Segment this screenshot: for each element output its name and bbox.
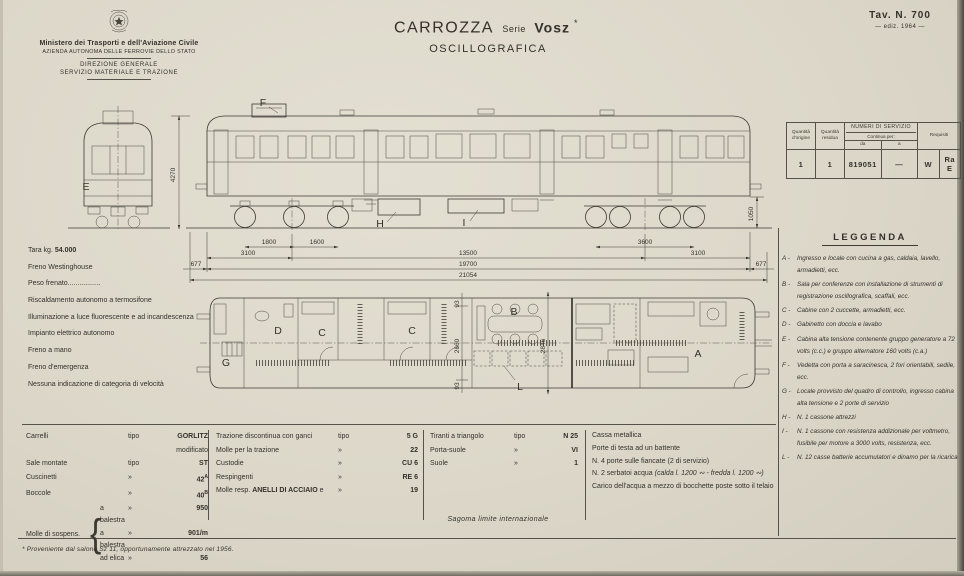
front-view-drawing: E	[68, 106, 170, 231]
legend-text: Vedetta con porta a saracinesca, 2 fori …	[797, 360, 958, 384]
row-value-sup: B	[204, 490, 208, 496]
dim-label: 3100	[691, 250, 706, 257]
row-label-post: e	[318, 487, 324, 494]
row-tipo: tipo	[128, 457, 152, 471]
dim-label: 13500	[459, 250, 477, 257]
legend-key: E -	[782, 334, 797, 358]
cassa-line-serbatoi: N. 2 serbatoi acqua (calda l. 1200 ∾ - f…	[592, 468, 774, 480]
legend-text: N. 12 casse batterie accumulatori e dina…	[797, 452, 958, 464]
legend-item-a: A -Ingresso e locale con cucina a gas, c…	[782, 253, 958, 277]
dim-label: 21054	[459, 272, 477, 279]
row-label: ad elica	[100, 553, 128, 566]
dim-label: 2846	[540, 338, 547, 353]
dim-floor-1050: 1050	[748, 197, 764, 228]
title-serie: Serie	[502, 24, 526, 34]
row-label: a balestra	[100, 503, 128, 528]
row-value: 950	[152, 503, 208, 528]
servizio-materiale: SERVIZIO MATERIALE E TRAZIONE	[16, 70, 222, 76]
cell-number-a: —	[881, 150, 918, 179]
row-label: Trazione discontinua con ganci	[216, 430, 338, 444]
legend-title: LEGGENDA	[822, 232, 918, 246]
table-trazione: Trazione discontinua con gancitipo5 G Mo…	[216, 430, 418, 522]
legend-key: D -	[782, 319, 797, 331]
agency-name: AZIENDA AUTONOMA DELLE FERROVIE DELLO ST…	[16, 49, 222, 55]
cell-number-da: 819051	[845, 150, 882, 179]
table-cassa: Cassa metallica Porte di testa ad un bat…	[592, 430, 774, 522]
direzione-generale: DIREZIONE GENERALE	[16, 62, 222, 68]
legend-text: N. 1 cassone attrezzi	[797, 412, 958, 424]
subtitle-oscillografica: OSCILLOGRAFICA	[348, 43, 628, 55]
plate-number: Tav. N. 700	[845, 10, 955, 21]
divider	[208, 430, 209, 520]
cell-req-w: W	[918, 150, 940, 179]
legend-text: Sala per conferenze con installazione di…	[797, 279, 958, 303]
sagoma-note: Sagoma limite internazionale	[398, 516, 598, 523]
row-tipo: tipo	[514, 430, 538, 444]
row-tipo: »	[128, 503, 152, 528]
row-value: RE 6	[362, 471, 418, 485]
legend-letter-l: L	[517, 381, 523, 393]
row-label: Suole	[430, 457, 514, 471]
molle-label: Molle di sospens.	[26, 531, 90, 538]
row-label: Cuscinetti	[26, 471, 128, 487]
dim-label: 3600	[638, 239, 653, 246]
row-value: 19	[362, 484, 418, 498]
legend-key: F -	[782, 360, 797, 384]
row-tipo: »	[338, 457, 362, 471]
legend-letter-h: H	[376, 218, 384, 230]
table-row: ad elica»56	[100, 553, 208, 566]
row-label: Molle resp.	[216, 487, 252, 494]
row-value: VI	[538, 444, 578, 458]
legend-letter-b: B	[510, 306, 517, 318]
dimension-chains: 1800 1600 3600 3100 13500 3100 677 19700…	[183, 232, 774, 283]
legend-text: Locale provvisto del quadro di controllo…	[797, 386, 958, 410]
row-tipo: »	[338, 444, 362, 458]
footnote: * Proveniente dal salone Sz 11, opportun…	[22, 546, 234, 553]
legend-key: I -	[782, 426, 797, 450]
scan-edge-left	[0, 0, 3, 576]
title-model-asterisk: *	[574, 18, 578, 28]
row-tipo: »	[514, 457, 538, 471]
row-label: Respingenti	[216, 471, 338, 485]
legend-text: Cabina alta tensione contenente gruppo g…	[797, 334, 958, 358]
table-row: Porta-suole»VI	[430, 444, 578, 458]
cassa-line: Cassa metallica	[592, 430, 774, 442]
legend-text: Ingresso e locale con cucina a gas, cald…	[797, 253, 958, 277]
legend-item-d: D -Gabinetto con doccia e lavabo	[782, 319, 958, 331]
service-numbers-table: Quantità d'origine Quantità residua NUME…	[786, 122, 961, 179]
table-row: Suole»1	[430, 457, 578, 471]
legend-letter-f: F	[260, 97, 266, 109]
table-row: Trazione discontinua con gancitipo5 G	[216, 430, 418, 444]
title-block: CARROZZA Serie Vosz* OSCILLOGRAFICA	[348, 18, 628, 55]
row-tipo: »	[338, 484, 362, 498]
legend-item-b: B -Sala per conferenze con installazione…	[782, 279, 958, 303]
legend-key: C -	[782, 305, 797, 317]
cassa-line: Porte di testa ad un battente	[592, 443, 774, 455]
row-label: Porta-suole	[430, 444, 514, 458]
legend-key: A -	[782, 253, 797, 277]
side-elevation-drawing: F H I	[186, 97, 772, 231]
table-row: Molle per la trazione»22	[216, 444, 418, 458]
col-requisiti: Requisiti	[918, 123, 961, 150]
continua-per-label: Continua per:	[846, 134, 916, 140]
row-tipo: tipo	[338, 430, 362, 444]
legend-key: L -	[782, 452, 797, 464]
table-row: Cuscinetti»42A	[26, 471, 208, 487]
legend-panel: LEGGENDA A -Ingresso e locale con cucina…	[782, 232, 958, 467]
table-tiranti: Tiranti a triangolotipoN 25 Porta-suole»…	[430, 430, 578, 522]
numeri-di-servizio-label: NUMERI DI SERVIZIO	[846, 124, 916, 133]
divider	[423, 430, 424, 520]
table-row: Respingenti»RE 6	[216, 471, 418, 485]
cell-req-ra: Ra E	[939, 150, 961, 179]
legend-item-g: G -Locale provvisto del quadro di contro…	[782, 386, 958, 410]
row-value: 56	[152, 553, 208, 566]
dim-label: 2660	[454, 338, 461, 353]
edition: — ediz. 1964 —	[845, 24, 955, 30]
dim-label: 93	[454, 300, 461, 308]
ministry-name: Ministero dei Trasporti e dell'Aviazione…	[16, 40, 222, 47]
dim-label: 4270	[170, 167, 177, 182]
table-row: Sale montatetipoST	[26, 457, 208, 471]
col-a: a	[881, 141, 918, 150]
plate-number-block: Tav. N. 700 — ediz. 1964 —	[845, 10, 955, 30]
title-model: Vosz	[534, 19, 570, 35]
row-value: CU 6	[362, 457, 418, 471]
row-label-bold: ANELLI DI ACCIAIO	[252, 487, 317, 494]
row-tipo: »	[128, 471, 152, 487]
plan-view-drawing: G D C C B L A 93 2660 93 2846	[197, 292, 772, 394]
legend-item-c: C -Cabine con 2 cuccette, armadietti, ec…	[782, 305, 958, 317]
row-tipo: tipo	[128, 430, 152, 457]
row-value-sup: A	[204, 474, 208, 480]
scan-edge-right	[957, 0, 964, 576]
divider	[87, 79, 151, 80]
row-label: Boccole	[26, 487, 128, 503]
table-row: a balestra»950	[100, 503, 208, 528]
legend-text: Cabine con 2 cuccette, armadietti, ecc.	[797, 305, 958, 317]
legend-letter-d: D	[274, 325, 282, 337]
table-carrelli: CarrellitipoGORLITZ modificato Sale mont…	[26, 430, 208, 522]
row-value: N 25	[538, 430, 578, 444]
spec-tara-label: Tara kg.	[28, 247, 55, 254]
dim-label: 19700	[459, 261, 477, 268]
row-tipo: »	[514, 444, 538, 458]
dim-label: 3100	[241, 250, 256, 257]
legend-letter-i: I	[463, 217, 466, 229]
legend-key: H -	[782, 412, 797, 424]
carriage-technical-drawing: E 4270	[58, 95, 780, 425]
serbatoi-label: N. 2 serbatoi acqua	[592, 470, 655, 477]
row-value-rest: modificato	[176, 447, 208, 454]
dim-height-4270: 4270	[170, 116, 190, 229]
table-row: Boccole»40B	[26, 487, 208, 503]
dim-label: 677	[191, 261, 202, 268]
legend-key: G -	[782, 386, 797, 410]
legend-item-f: F -Vedetta con porta a saracinesca, 2 fo…	[782, 360, 958, 384]
legend-text: Gabinetto con doccia e lavabo	[797, 319, 958, 331]
cassa-line: N. 4 porte sulle fiancate (2 di servizio…	[592, 456, 774, 468]
row-value: 22	[362, 444, 418, 458]
legend-item-i: I -N. 1 cassone con resistenza addiziona…	[782, 426, 958, 450]
legend-letter-c2: C	[408, 325, 416, 337]
row-tipo: »	[128, 487, 152, 503]
dim-label: 677	[756, 261, 767, 268]
table-row: Molle resp. ANELLI DI ACCIAIO e»19	[216, 484, 418, 498]
cell-origin: 1	[787, 150, 816, 179]
col-quantita-residua: Quantità residua	[816, 123, 845, 150]
row-value: 5 G	[362, 430, 418, 444]
title-carrozza: CARROZZA	[394, 19, 494, 36]
row-tipo: »	[338, 471, 362, 485]
compartment-letter-e: E	[82, 181, 89, 193]
cell-residual: 1	[816, 150, 845, 179]
row-label: Tiranti a triangolo	[430, 430, 514, 444]
legend-item-e: E -Cabina alta tensione contenente grupp…	[782, 334, 958, 358]
dim-label: 1050	[748, 206, 755, 221]
row-label: Molle per la trazione	[216, 444, 338, 458]
drawing-sheet: Ministero dei Trasporti e dell'Aviazione…	[0, 0, 964, 576]
legend-text: N. 1 cassone con resistenza addizionale …	[797, 426, 958, 450]
cassa-line: Carico dell'acqua a mezzo di bocchette p…	[592, 481, 774, 493]
col-da: da	[845, 141, 882, 150]
molle-sospensione-group: Molle di sospens. { a balestra»950 a bal…	[26, 503, 208, 566]
dim-label: 1800	[262, 239, 277, 246]
table-row: CarrellitipoGORLITZ modificato	[26, 430, 208, 457]
legend-item-l: L -N. 12 casse batterie accumulatori e d…	[782, 452, 958, 464]
row-tipo: »	[128, 553, 152, 566]
divider	[87, 58, 151, 59]
row-value: 1	[538, 457, 578, 471]
row-label: Carrelli	[26, 430, 128, 457]
legend-key: B -	[782, 279, 797, 303]
state-railways-crest-icon	[106, 8, 132, 38]
legend-item-h: H -N. 1 cassone attrezzi	[782, 412, 958, 424]
legend-letter-c1: C	[318, 327, 326, 339]
serbatoi-detail: (calda l. 1200 ∾ - fredda l. 1200 ∾)	[655, 470, 764, 477]
col-numeri-servizio: NUMERI DI SERVIZIO Continua per:	[845, 123, 918, 141]
legend-letter-a: A	[694, 348, 701, 360]
table-row: Tiranti a triangolotipoN 25	[430, 430, 578, 444]
ministry-block: Ministero dei Trasporti e dell'Aviazione…	[16, 8, 222, 83]
row-label: Custodie	[216, 457, 338, 471]
row-label: Sale montate	[26, 457, 128, 471]
row-value: ST	[152, 457, 208, 471]
dim-label: 1600	[310, 239, 325, 246]
col-quantita-origine: Quantità d'origine	[787, 123, 816, 150]
dim-label: 93	[454, 382, 461, 390]
legend-letter-g: G	[222, 357, 230, 369]
table-row: Custodie»CU 6	[216, 457, 418, 471]
scan-edge-bottom	[0, 571, 964, 576]
divider	[585, 430, 586, 520]
row-value-bold: GORLITZ	[177, 433, 208, 440]
